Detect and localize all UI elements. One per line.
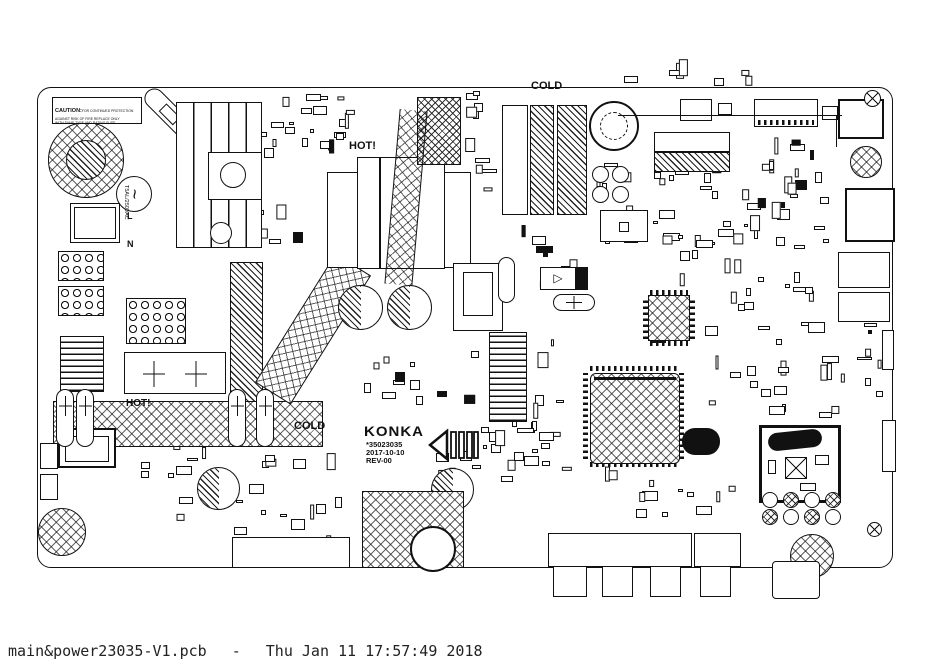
component — [795, 180, 807, 190]
top-connector-1 — [680, 99, 712, 121]
component — [865, 378, 871, 386]
component — [758, 198, 766, 208]
component — [868, 330, 872, 334]
component — [476, 165, 483, 174]
component — [410, 362, 416, 367]
component — [464, 395, 475, 404]
component — [730, 372, 741, 378]
component — [776, 339, 782, 345]
heatsink-hole-2 — [210, 222, 232, 244]
film-cap-hatched-2 — [557, 105, 587, 215]
hot-label-top: HOT! — [349, 141, 376, 152]
component — [712, 191, 719, 199]
bottom-connector-long — [548, 533, 692, 567]
component — [141, 471, 150, 479]
component — [758, 326, 770, 330]
component — [805, 287, 812, 295]
component — [285, 127, 295, 135]
component — [680, 274, 685, 287]
heatsink-bar-top — [654, 132, 730, 152]
axial-cap-horizontal — [553, 294, 595, 311]
pad-7 — [804, 509, 820, 525]
component — [329, 139, 334, 153]
component — [538, 352, 549, 368]
y-cap-pill-4 — [256, 389, 274, 447]
right-connector-4 — [838, 292, 890, 322]
component — [669, 175, 673, 181]
component — [814, 226, 825, 230]
component — [310, 129, 315, 132]
mounting-hole-hatched-bl — [38, 508, 86, 556]
caution-line1: FOR CONTINUED PROTECTION — [82, 109, 133, 113]
component — [761, 389, 771, 397]
component — [517, 428, 534, 433]
component — [234, 527, 246, 535]
mounting-hole-hatched-r — [850, 146, 882, 178]
statusbar-timestamp: Thu Jan 11 17:57:49 2018 — [266, 642, 483, 660]
component — [662, 512, 668, 517]
cold-label-bottom: COLD — [294, 421, 325, 432]
component — [524, 456, 539, 466]
component — [781, 202, 785, 208]
component — [316, 504, 326, 514]
pad-4 — [825, 492, 841, 508]
component — [857, 357, 872, 361]
component — [273, 139, 277, 147]
component — [437, 391, 447, 397]
component — [507, 460, 515, 471]
mounting-hole-tr — [864, 90, 881, 107]
common-mode-choke-1 — [58, 251, 104, 281]
smd-cap-black — [682, 428, 720, 455]
opto-coupler: ▷ — [540, 267, 576, 290]
heatsink-hole-1 — [220, 162, 246, 188]
component — [746, 76, 753, 86]
component — [662, 235, 672, 244]
left-edge-part-2 — [40, 474, 58, 500]
memory-ic-pins-right — [690, 297, 695, 339]
component — [841, 374, 845, 383]
film-cap-hatched-1 — [530, 105, 554, 215]
shield-part-1 — [815, 455, 829, 465]
filter-stack — [60, 336, 104, 392]
component — [541, 443, 551, 449]
component — [465, 138, 475, 152]
component — [769, 161, 775, 171]
component — [741, 189, 748, 200]
bulk-cap-2 — [387, 285, 432, 330]
component — [820, 197, 829, 204]
pcb-viewer-page: CAUTION:FOR CONTINUED PROTECTION AGAINST… — [0, 0, 950, 672]
component — [345, 113, 349, 129]
component — [320, 141, 330, 148]
component — [654, 172, 661, 179]
component — [532, 449, 538, 454]
bulk-cap-3 — [197, 467, 240, 510]
component — [302, 138, 308, 148]
fin-ladder — [489, 332, 527, 422]
component — [659, 210, 676, 219]
component — [747, 366, 756, 376]
component — [261, 510, 267, 515]
component — [794, 245, 805, 250]
statusbar: main&power23035-V1.pcb - Thu Jan 11 17:5… — [8, 642, 483, 660]
component — [364, 383, 371, 393]
pad-6 — [783, 509, 799, 525]
component — [787, 183, 796, 195]
component — [775, 137, 779, 154]
caution-line3: WITH SAME TYPE AND RATING FUSE — [55, 121, 139, 125]
connector-tab-3 — [650, 567, 681, 597]
component — [794, 272, 800, 283]
component — [373, 362, 379, 369]
component — [472, 465, 481, 469]
shield-ic — [785, 457, 807, 479]
main-ic — [590, 373, 680, 464]
component — [289, 122, 294, 125]
connector-tab-2 — [602, 567, 633, 597]
trace-vertical — [836, 115, 837, 147]
pad-8 — [825, 509, 841, 525]
shield-part-2 — [800, 483, 816, 491]
y-cap-pill-3 — [228, 389, 246, 447]
y-cap-pill-1 — [56, 389, 74, 447]
component — [532, 236, 546, 245]
component — [338, 96, 345, 100]
component — [831, 406, 839, 414]
component — [280, 514, 287, 518]
component — [416, 396, 423, 405]
component — [731, 291, 737, 303]
component — [542, 461, 551, 466]
shield-part-3 — [768, 460, 776, 474]
component — [865, 348, 871, 356]
component — [774, 386, 787, 395]
title-block-rev: REV-00 — [366, 457, 392, 465]
transformer-divider — [379, 158, 381, 268]
component — [141, 462, 150, 469]
component — [744, 302, 754, 311]
pad-2 — [783, 492, 799, 508]
common-mode-choke-2 — [58, 286, 104, 316]
component — [778, 367, 790, 373]
component — [636, 509, 647, 519]
top-connector-3-pins — [758, 120, 814, 125]
component — [277, 205, 287, 220]
statusbar-separator: - — [232, 642, 241, 660]
component — [556, 400, 563, 403]
component — [815, 172, 822, 183]
component — [484, 188, 493, 192]
component — [533, 403, 538, 419]
component — [700, 186, 712, 191]
inductor-ring-2 — [612, 166, 629, 183]
component — [466, 106, 477, 117]
left-edge-part-1 — [40, 443, 58, 469]
cap-bank — [124, 352, 226, 394]
component — [327, 453, 336, 470]
component — [383, 357, 389, 364]
component — [410, 380, 420, 390]
connector-tab-1 — [553, 567, 587, 597]
main-ic-pins-left — [583, 373, 588, 459]
component — [754, 230, 758, 239]
inductor-ring-1 — [592, 166, 609, 183]
component — [536, 246, 553, 253]
component — [624, 76, 638, 83]
component — [734, 259, 741, 273]
component — [179, 497, 193, 504]
component — [810, 150, 814, 160]
component — [336, 133, 344, 140]
component — [483, 445, 488, 449]
component — [744, 224, 748, 228]
component — [692, 250, 699, 259]
component — [653, 221, 658, 224]
inductor-ring-4 — [612, 186, 629, 203]
right-edge-part-2 — [882, 420, 896, 472]
component — [649, 480, 654, 487]
caution-title: CAUTION: — [55, 108, 82, 114]
component — [562, 467, 572, 471]
top-connector-2 — [718, 103, 732, 115]
component — [680, 251, 690, 262]
component — [776, 237, 785, 246]
statusbar-filename: main&power23035-V1.pcb — [8, 642, 207, 660]
pad-1 — [762, 492, 778, 508]
neutral-label: N — [127, 240, 134, 249]
component — [609, 470, 618, 480]
component — [679, 59, 688, 76]
component — [639, 492, 645, 502]
line-label: L — [127, 212, 133, 221]
component — [501, 476, 514, 482]
component — [301, 108, 312, 115]
component — [269, 239, 281, 245]
title-block-brand: KONKA — [364, 424, 424, 438]
right-connector-3 — [838, 252, 890, 288]
component — [293, 459, 306, 469]
pad-3 — [804, 492, 820, 508]
component — [750, 381, 758, 388]
relay-box — [600, 210, 648, 242]
buzzer — [410, 526, 456, 572]
component — [475, 158, 491, 164]
cap-symbol-2 — [185, 361, 207, 387]
film-cap-white — [502, 105, 528, 215]
component — [382, 392, 396, 400]
component — [539, 432, 554, 441]
component — [792, 139, 801, 145]
trace-horizontal — [618, 115, 842, 116]
component — [823, 239, 829, 243]
y-cap-pill-2 — [76, 389, 94, 447]
component — [725, 259, 731, 274]
choke-core — [66, 140, 106, 180]
component — [708, 400, 715, 405]
connector-tab-4 — [700, 567, 731, 597]
inductor-ring-3 — [592, 186, 609, 203]
mains-transformer-small — [70, 203, 120, 243]
component — [723, 221, 731, 228]
logo-arrow-icon — [426, 426, 480, 464]
component — [876, 391, 883, 397]
component — [794, 169, 798, 178]
component — [346, 110, 355, 115]
bulk-cap-1 — [338, 285, 383, 330]
ac-inlet-symbol: ~ — [116, 176, 152, 212]
axial-cap-vertical — [498, 257, 515, 303]
component — [750, 215, 760, 231]
component — [728, 485, 735, 491]
component — [758, 277, 764, 282]
component — [660, 178, 666, 185]
component — [808, 322, 825, 333]
component — [696, 240, 712, 248]
component — [704, 173, 712, 184]
component — [202, 447, 206, 459]
mounting-hole-br — [867, 522, 882, 537]
component — [495, 430, 505, 446]
memory-ic-pins-bottom — [650, 341, 688, 346]
component — [746, 288, 751, 296]
bottom-connector-short — [694, 533, 741, 567]
component — [827, 363, 832, 380]
component — [176, 466, 192, 475]
hot-label-bottom: HOT! — [126, 399, 150, 409]
bottom-connector-left — [232, 537, 350, 568]
component — [522, 225, 526, 237]
component — [249, 484, 264, 494]
component — [864, 323, 877, 327]
round-transformer-core — [600, 112, 628, 140]
component — [705, 326, 718, 335]
tuner-module — [772, 561, 820, 599]
main-ic-pin1-bar — [594, 377, 676, 380]
heatsink-bar-fins — [654, 152, 730, 172]
component — [550, 339, 553, 346]
component — [785, 284, 791, 288]
component — [265, 455, 275, 462]
component — [714, 78, 724, 86]
inductor-box — [126, 298, 186, 344]
component — [769, 406, 785, 414]
component — [395, 372, 405, 382]
component — [471, 351, 479, 359]
component — [718, 229, 734, 238]
component — [715, 356, 718, 370]
component — [310, 504, 314, 519]
component — [473, 91, 481, 96]
component — [696, 506, 712, 515]
main-ic-pins-top — [590, 366, 678, 371]
component — [264, 148, 275, 158]
component — [678, 235, 683, 239]
component — [313, 106, 327, 115]
component — [306, 94, 321, 101]
component — [293, 232, 302, 243]
component — [514, 452, 524, 461]
component — [168, 473, 174, 478]
component — [236, 500, 243, 504]
pad-5 — [762, 509, 778, 525]
component — [335, 497, 342, 507]
component — [282, 97, 289, 107]
component — [687, 492, 694, 497]
memory-ic — [648, 295, 690, 341]
component — [481, 427, 489, 433]
cold-label-top: COLD — [531, 81, 562, 92]
component — [177, 514, 185, 521]
component — [773, 202, 782, 219]
component — [678, 489, 683, 492]
regulator-body — [463, 272, 493, 316]
caution-box: CAUTION:FOR CONTINUED PROTECTION AGAINST… — [52, 97, 142, 124]
component — [187, 458, 198, 462]
component — [291, 519, 306, 530]
component — [271, 122, 285, 128]
cap-symbol-1 — [143, 361, 165, 387]
component — [716, 491, 720, 502]
component — [733, 233, 743, 244]
opto-stripe — [576, 267, 588, 290]
right-connector-2 — [845, 188, 895, 242]
right-edge-part-1 — [882, 330, 894, 370]
